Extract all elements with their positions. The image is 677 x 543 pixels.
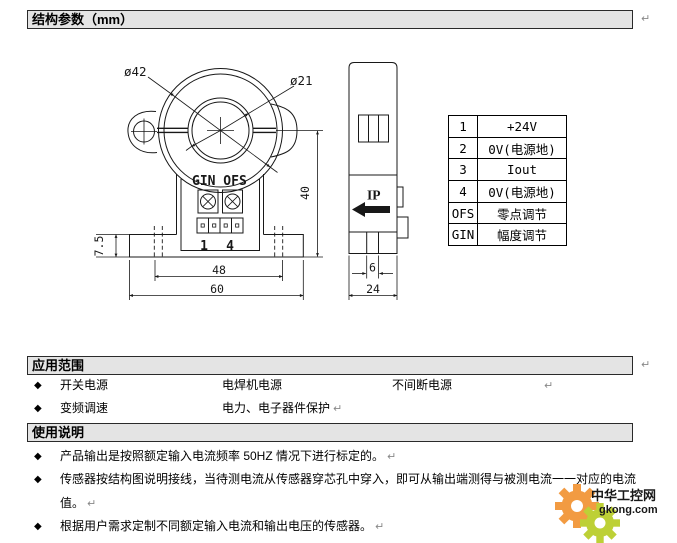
usage-line-continuation: 值。↵ [60, 496, 96, 511]
watermark-site-name: 中华工控网 [591, 488, 656, 503]
paragraph-mark: ↵ [87, 498, 96, 510]
front-view: ø42 ø21 GIN OFS [92, 64, 323, 300]
usage-title: 使用说明 [32, 425, 84, 440]
dim-inner-diameter-label: ø21 [290, 73, 313, 88]
bullet-diamond: ◆ [34, 520, 42, 533]
application-item: 电力、电子器件保护 [222, 401, 330, 415]
table-row: 3 Iout [449, 159, 567, 181]
trim-label: GIN OFS [192, 174, 247, 189]
pin-connector: 1 4 [197, 218, 243, 254]
paragraph-mark: ↵ [641, 360, 650, 371]
structure-title: 结构参数（mm） [32, 12, 133, 27]
paragraph-mark: ↵ [387, 451, 396, 463]
bullet-diamond: ◆ [34, 379, 42, 392]
pin-number: 2 [449, 137, 478, 159]
bullet-diamond: ◆ [34, 450, 42, 463]
application-item: 电焊机电源 [222, 378, 282, 392]
table-row: 2 0V(电源地) [449, 137, 567, 159]
application-item: 变频调速 [60, 401, 108, 415]
pin-description: Iout [478, 159, 567, 181]
dim-overall-width-label: 60 [210, 282, 224, 296]
paragraph-mark: ↵ [544, 381, 553, 392]
current-direction-arrow [352, 202, 390, 217]
pin-number: GIN [449, 224, 478, 246]
pin-description: 0V(电源地) [478, 137, 567, 159]
dim-flange-height: 7.5 [92, 235, 130, 258]
side-tab-large [397, 217, 408, 238]
dim-pin-width-label: 6 [369, 261, 376, 275]
pin-number: 3 [449, 159, 478, 181]
application-item: 不间断电源 [392, 378, 452, 392]
table-row: OFS 零点调节 [449, 202, 567, 224]
table-row: 1 +24V [449, 116, 567, 138]
section-bar-application: 应用范围 [27, 356, 633, 375]
pin-first-label: 1 [200, 239, 208, 254]
pin-description: 0V(电源地) [478, 181, 567, 203]
table-row: GIN 幅度调节 [449, 224, 567, 246]
pin-description-table: 1 +24V 2 0V(电源地) 3 Iout 4 0V(电源地) OFS 零点… [448, 115, 567, 246]
section-bar-structure: 结构参数（mm） [27, 10, 633, 29]
bullet-diamond: ◆ [34, 473, 42, 486]
pin-number: 1 [449, 116, 478, 138]
application-title: 应用范围 [32, 358, 84, 373]
watermark-logo: 中华工控网 gkong.com [550, 478, 677, 543]
pin-last-label: 4 [226, 239, 234, 254]
usage-line-text: 值。 [60, 496, 84, 510]
watermark-site-url: gkong.com [599, 504, 658, 516]
side-window [359, 115, 389, 142]
primary-current-label: IP [367, 188, 381, 203]
side-view: IP 6 24 [349, 63, 408, 301]
pin-description: 零点调节 [478, 202, 567, 224]
dimension-drawing: ø42 ø21 GIN OFS [80, 40, 460, 320]
paragraph-mark: ↵ [375, 521, 384, 533]
application-item: 开关电源 [60, 378, 108, 392]
dim-depth-label: 24 [366, 282, 380, 296]
table-row: 4 0V(电源地) [449, 181, 567, 203]
paragraph-mark: ↵ [333, 404, 342, 415]
side-tab-small [397, 187, 403, 207]
dim-hole-span-label: 48 [212, 263, 226, 277]
paragraph-mark: ↵ [641, 14, 650, 25]
usage-line: 产品输出是按照额定输入电流频率 50HZ 情况下进行标定的。↵ [60, 449, 396, 464]
pin-number: 4 [449, 181, 478, 203]
dim-overall-height: 40 [276, 131, 323, 258]
usage-line-text: 根据用户需求定制不同额定输入电流和输出电压的传感器。 [60, 519, 372, 533]
bullet-diamond: ◆ [34, 402, 42, 415]
side-body [349, 63, 397, 254]
dim-hole-span: 48 [155, 260, 283, 281]
pin-number: OFS [449, 202, 478, 224]
section-bar-usage: 使用说明 [27, 423, 633, 442]
left-ear [128, 111, 157, 153]
usage-line: 根据用户需求定制不同额定输入电流和输出电压的传感器。↵ [60, 519, 384, 534]
dim-flange-height-label: 7.5 [92, 236, 106, 257]
usage-line-text: 产品输出是按照额定输入电流频率 50HZ 情况下进行标定的。 [60, 449, 384, 463]
dim-overall-height-label: 40 [298, 186, 312, 200]
dim-pin-width: 6 [352, 256, 393, 279]
trim-pots: GIN OFS [192, 174, 247, 213]
dim-outer-diameter-label: ø42 [124, 64, 147, 79]
pin-description: 幅度调节 [478, 224, 567, 246]
pin-description: +24V [478, 116, 567, 138]
